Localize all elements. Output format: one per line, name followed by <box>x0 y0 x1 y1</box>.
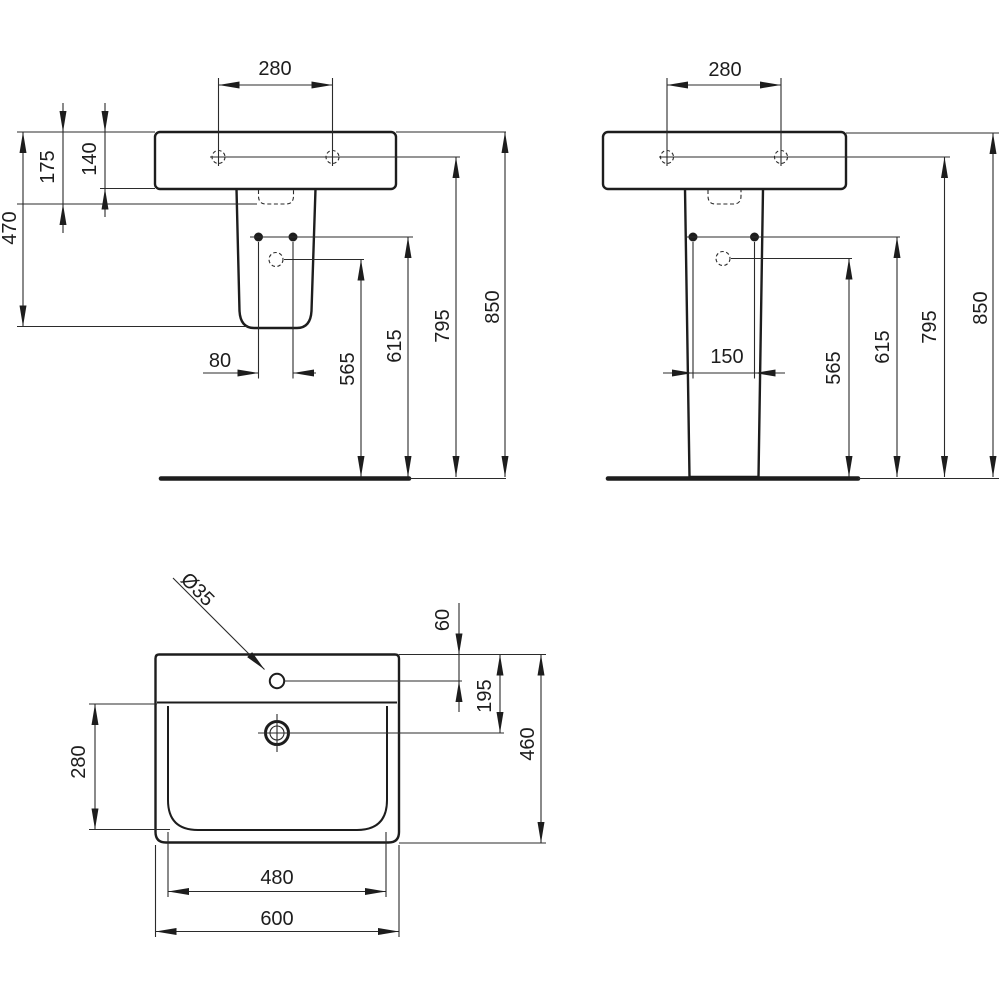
pedestal-outline <box>685 189 763 477</box>
dim-label-795: 795 <box>919 310 941 343</box>
dim-label-140: 140 <box>79 142 101 175</box>
dim-label-150: 150 <box>710 346 743 368</box>
dim-label-480: 480 <box>260 867 293 889</box>
washbasin-dimension-drawing: 280 470 175 140 80 565 615 795 850 <box>0 0 1000 1000</box>
dim-label-600: 600 <box>260 908 293 930</box>
dim-label-850: 850 <box>970 291 992 324</box>
dim-label-280: 280 <box>258 58 291 80</box>
outlet-hidden-circle <box>269 253 283 267</box>
dim-label-565: 565 <box>823 351 845 384</box>
basin-outline <box>603 132 846 189</box>
dim-label-280: 280 <box>708 59 741 81</box>
dim-label-60: 60 <box>432 609 454 631</box>
dim-label-175: 175 <box>37 150 59 183</box>
front-view-semi-pedestal: 280 470 175 140 80 565 615 795 850 <box>0 58 506 479</box>
tap-hole <box>270 674 284 688</box>
basin-outline <box>155 132 396 189</box>
semi-pedestal-outline <box>237 189 316 328</box>
dim-label-615: 615 <box>384 329 406 362</box>
dim-label-565: 565 <box>337 352 359 385</box>
dim-label-280-bowl: 280 <box>68 745 90 778</box>
dim-label-615: 615 <box>872 330 894 363</box>
dim-label-diameter-35: Ø35 <box>176 569 218 611</box>
front-view-full-pedestal: 280 150 565 615 795 850 <box>603 59 999 479</box>
dim-label-795: 795 <box>432 309 454 342</box>
dim-label-460: 460 <box>517 727 539 760</box>
dim-label-80: 80 <box>209 350 231 372</box>
dim-label-195: 195 <box>474 679 496 712</box>
pedestal-cutout-hidden-edge <box>708 190 741 204</box>
plan-view: Ø35 280 60 195 460 480 600 <box>68 569 546 937</box>
dim-label-850: 850 <box>482 290 504 323</box>
dim-label-470: 470 <box>0 211 21 244</box>
technical-drawing-page: 280 470 175 140 80 565 615 795 850 <box>0 0 1000 1000</box>
pedestal-cutout-hidden-edge <box>259 190 294 204</box>
outlet-hidden-circle <box>716 252 730 266</box>
